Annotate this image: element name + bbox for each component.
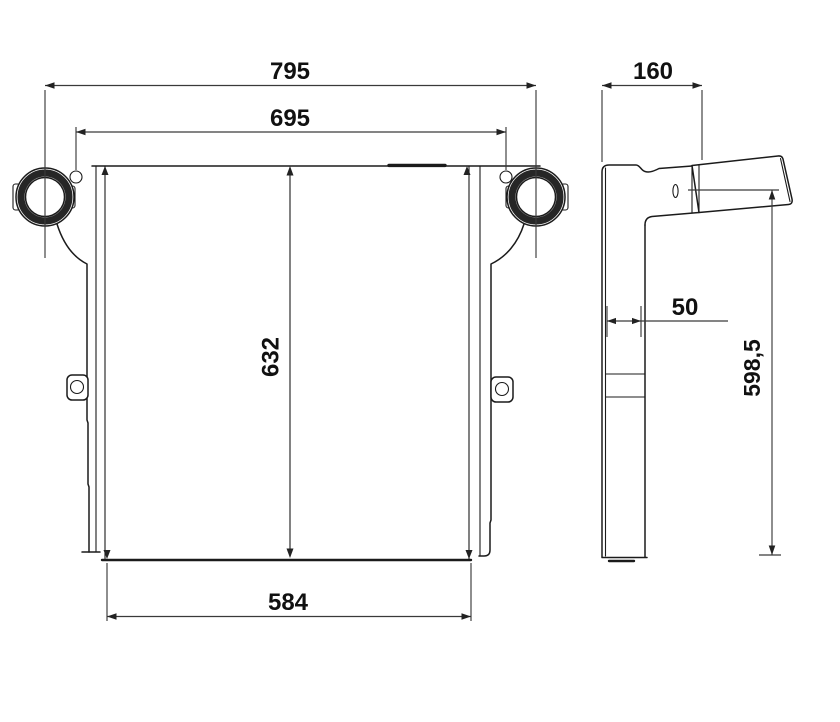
side-tank-underside bbox=[645, 213, 699, 226]
core bbox=[102, 166, 471, 560]
core-edge-arrows bbox=[102, 166, 473, 559]
left-tank bbox=[57, 166, 100, 552]
side-outer-profile bbox=[602, 165, 692, 557]
right-bracket-hole bbox=[496, 383, 509, 396]
dim-bottom-width: 584 bbox=[107, 563, 471, 621]
dim-core-height: 632 bbox=[257, 166, 293, 558]
dim-top-depth: 160 bbox=[602, 58, 702, 162]
left-port bbox=[13, 168, 82, 226]
dim-lower-depth: 50 bbox=[607, 294, 728, 337]
dim-695-label: 695 bbox=[270, 105, 310, 132]
right-tank bbox=[479, 166, 524, 556]
outlet-duct bbox=[692, 156, 792, 213]
right-port bbox=[500, 168, 568, 226]
technical-drawing-canvas: 795 695 632 584 160 bbox=[0, 0, 840, 722]
front-view bbox=[13, 165, 568, 560]
intercooler-dimension-drawing: 795 695 632 584 160 bbox=[0, 0, 840, 722]
right-port-bolt-hole bbox=[500, 171, 512, 183]
dim-50-label: 50 bbox=[672, 294, 699, 321]
dim-overall-height: 598,5 bbox=[688, 190, 781, 555]
dim-160-label: 160 bbox=[633, 58, 673, 85]
dim-795-label: 795 bbox=[270, 58, 310, 85]
left-bracket-hole bbox=[71, 381, 84, 394]
tank-face-slot bbox=[673, 185, 678, 198]
dim-632-label: 632 bbox=[257, 337, 284, 377]
left-port-bolt-hole bbox=[70, 171, 82, 183]
dim-inner-width: 695 bbox=[76, 105, 506, 170]
dim-5985-label: 598,5 bbox=[739, 339, 765, 397]
dim-584-label: 584 bbox=[268, 589, 309, 616]
